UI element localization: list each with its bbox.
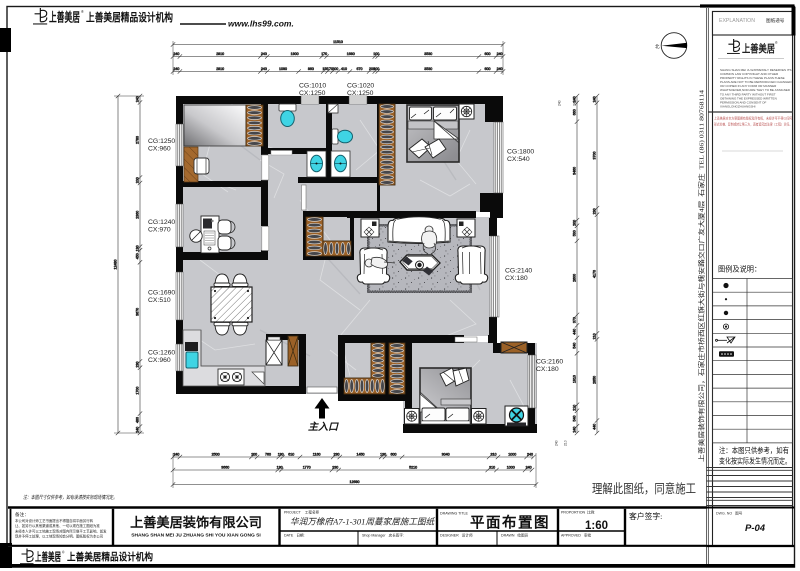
svg-text:2500: 2500 bbox=[212, 453, 220, 457]
svg-text:240: 240 bbox=[527, 453, 533, 457]
svg-text:CG:1240: CG:1240 bbox=[148, 219, 175, 226]
svg-text:CX:960: CX:960 bbox=[148, 357, 171, 364]
svg-text:1000: 1000 bbox=[507, 466, 515, 470]
svg-text:610: 610 bbox=[288, 453, 294, 457]
svg-text:1000: 1000 bbox=[508, 453, 516, 457]
svg-text:Shop Manager 店长签字:: Shop Manager 店长签字: bbox=[362, 533, 404, 538]
svg-text:北: 北 bbox=[655, 43, 660, 50]
svg-text:3460: 3460 bbox=[573, 167, 577, 175]
svg-text:100: 100 bbox=[373, 67, 379, 71]
svg-text:2810: 2810 bbox=[216, 52, 224, 56]
svg-text:3660: 3660 bbox=[221, 466, 229, 470]
svg-text:主入口: 主入口 bbox=[308, 421, 339, 433]
svg-text:540: 540 bbox=[573, 416, 577, 422]
svg-text:12690: 12690 bbox=[350, 480, 360, 484]
svg-text:2850: 2850 bbox=[593, 376, 597, 384]
svg-text:240: 240 bbox=[573, 100, 577, 106]
svg-text:形式抄袭、复制或转让第三方，违者追究其法律（工程）责任。: 形式抄袭、复制或转让第三方，违者追究其法律（工程）责任。 bbox=[714, 122, 792, 127]
svg-text:图例及说明：: 图例及说明： bbox=[718, 265, 761, 274]
svg-text:410: 410 bbox=[341, 67, 347, 71]
svg-text:DRAWING TITLE: DRAWING TITLE bbox=[440, 512, 469, 516]
svg-text:3040: 3040 bbox=[442, 453, 450, 457]
svg-text:310: 310 bbox=[491, 453, 497, 457]
svg-text:130: 130 bbox=[136, 245, 140, 251]
svg-text:平面布置图: 平面布置图 bbox=[470, 514, 550, 532]
svg-text:240: 240 bbox=[526, 466, 532, 470]
svg-text:670: 670 bbox=[357, 67, 363, 71]
svg-text:®: ® bbox=[775, 41, 778, 45]
svg-text:130: 130 bbox=[277, 466, 283, 470]
svg-text:240: 240 bbox=[136, 96, 140, 102]
svg-text:P-04: P-04 bbox=[745, 523, 766, 534]
svg-text:240: 240 bbox=[173, 453, 179, 457]
svg-text:240: 240 bbox=[497, 52, 503, 56]
svg-text:2780: 2780 bbox=[136, 136, 140, 144]
svg-text:240: 240 bbox=[497, 67, 503, 71]
svg-text:210: 210 bbox=[564, 440, 568, 446]
svg-text:240: 240 bbox=[558, 100, 562, 106]
svg-text:2360: 2360 bbox=[136, 211, 140, 219]
svg-text:440: 440 bbox=[573, 329, 577, 335]
svg-text:230: 230 bbox=[136, 362, 140, 368]
svg-text:DESIGNER 设计师: DESIGNER 设计师 bbox=[440, 533, 473, 538]
svg-text:240: 240 bbox=[593, 96, 597, 102]
svg-text:CG:2140: CG:2140 bbox=[505, 268, 532, 275]
svg-text:3530: 3530 bbox=[424, 52, 432, 56]
svg-text:130: 130 bbox=[380, 453, 386, 457]
svg-text:240: 240 bbox=[573, 427, 577, 433]
svg-text:200: 200 bbox=[573, 220, 577, 226]
svg-text:660: 660 bbox=[573, 109, 577, 115]
svg-text:XIANGLONGZHUANGSHI: XIANGLONGZHUANGSHI bbox=[720, 104, 756, 108]
svg-text:SHANG SHAN MEI JU ZHUANG SHI Y: SHANG SHAN MEI JU ZHUANG SHI YOU XIAN GO… bbox=[131, 533, 261, 539]
svg-text:860: 860 bbox=[308, 67, 314, 71]
svg-text:CG:1800: CG:1800 bbox=[507, 149, 534, 156]
svg-text:上善美居精品设计机构: 上善美居精品设计机构 bbox=[86, 10, 173, 24]
svg-text:5210: 5210 bbox=[409, 466, 417, 470]
svg-text:240: 240 bbox=[173, 67, 179, 71]
svg-text:530: 530 bbox=[573, 230, 577, 236]
svg-text:注：本图只供参考，如有: 注：本图只供参考，如有 bbox=[719, 445, 789, 455]
svg-text:440: 440 bbox=[593, 424, 597, 430]
svg-text:240: 240 bbox=[261, 52, 267, 56]
svg-text:CX:180: CX:180 bbox=[536, 366, 559, 373]
svg-text:130: 130 bbox=[278, 453, 284, 457]
svg-text:客户签字:: 客户签字: bbox=[629, 511, 662, 521]
svg-text:CG:2160: CG:2160 bbox=[536, 359, 563, 366]
svg-text:本公司对设计师工艺书面提出不得擅自将平面另行转: 本公司对设计师工艺书面提出不得擅自将平面另行转 bbox=[15, 518, 94, 523]
svg-text:1680: 1680 bbox=[347, 52, 355, 56]
svg-text:CX:970: CX:970 bbox=[148, 226, 171, 233]
svg-text:现并予停工处理，以工地现场知会分明。图纸版权为本公司: 现并予停工处理，以工地现场知会分明。图纸版权为本公司 bbox=[15, 534, 103, 539]
svg-text:APPROVED 审批: APPROVED 审批 bbox=[561, 533, 592, 538]
svg-text:210: 210 bbox=[573, 405, 577, 411]
svg-text:®: ® bbox=[62, 551, 65, 555]
svg-text:上善美居精品设计机构: 上善美居精品设计机构 bbox=[67, 551, 153, 564]
svg-text:1450: 1450 bbox=[357, 453, 365, 457]
svg-text:®: ® bbox=[81, 10, 84, 14]
svg-text:3670: 3670 bbox=[136, 308, 140, 316]
svg-text:PROJECT 工程名称: PROJECT 工程名称 bbox=[284, 510, 320, 515]
svg-text:DRAWN 绘图员: DRAWN 绘图员 bbox=[501, 533, 529, 538]
svg-text:理解此图纸，同意施工: 理解此图纸，同意施工 bbox=[592, 481, 696, 496]
svg-text:图纸递号: 图纸递号 bbox=[766, 17, 785, 24]
svg-text:240: 240 bbox=[136, 427, 140, 433]
svg-text:CX:510: CX:510 bbox=[148, 297, 171, 304]
svg-text:注：本图尺寸仅供参考，如有误请按实际现场情况定。: 注：本图尺寸仅供参考，如有误请按实际现场情况定。 bbox=[23, 494, 117, 501]
svg-text:CX:1250: CX:1250 bbox=[347, 90, 374, 97]
svg-text:变化按实际发生情况而定。: 变化按实际发生情况而定。 bbox=[719, 456, 791, 466]
svg-text:未经本人许可以工地施工现场对图内所示像平工艺影响、如发: 未经本人许可以工地施工现场对图内所示像平工艺影响、如发 bbox=[15, 528, 107, 533]
svg-text:600: 600 bbox=[391, 453, 397, 457]
svg-text:210: 210 bbox=[593, 333, 597, 339]
svg-text:1770: 1770 bbox=[303, 466, 311, 470]
svg-text:CX:960: CX:960 bbox=[148, 145, 171, 152]
svg-text:1700: 1700 bbox=[136, 387, 140, 395]
svg-text:170: 170 bbox=[321, 52, 327, 56]
svg-text:540: 540 bbox=[573, 343, 577, 349]
svg-text:450: 450 bbox=[136, 253, 140, 259]
svg-text:230: 230 bbox=[334, 453, 340, 457]
svg-text:CG:1690: CG:1690 bbox=[148, 290, 175, 297]
svg-text:1090: 1090 bbox=[279, 67, 287, 71]
svg-text:上善美居: 上善美居 bbox=[35, 550, 61, 564]
svg-text:370: 370 bbox=[573, 317, 577, 323]
svg-text:600: 600 bbox=[485, 52, 491, 56]
svg-text:760: 760 bbox=[265, 453, 271, 457]
svg-text:240: 240 bbox=[555, 440, 559, 446]
svg-text:200: 200 bbox=[136, 177, 140, 183]
svg-text:600: 600 bbox=[485, 67, 491, 71]
svg-text:230: 230 bbox=[332, 466, 338, 470]
svg-text:上善美居装饰有限公司，石家庄市桥西区红旗大街与槐安路交口广友: 上善美居装饰有限公司，石家庄市桥西区红旗大街与槐安路交口广友大厦4层 石家庄 T… bbox=[697, 89, 706, 462]
svg-text:4170: 4170 bbox=[593, 270, 597, 278]
svg-text:上善美居装饰有限公司: 上善美居装饰有限公司 bbox=[130, 514, 262, 530]
svg-text:310: 310 bbox=[489, 466, 495, 470]
svg-text:240: 240 bbox=[173, 52, 179, 56]
svg-text:CX:1250: CX:1250 bbox=[299, 90, 326, 97]
svg-text:备注：: 备注： bbox=[15, 511, 29, 518]
svg-text:CX:180: CX:180 bbox=[505, 275, 528, 282]
svg-text:CX:540: CX:540 bbox=[507, 156, 530, 163]
svg-text:CG:1020: CG:1020 bbox=[347, 83, 374, 90]
svg-text:DWG. NO 图号: DWG. NO 图号 bbox=[716, 511, 743, 516]
svg-text:240: 240 bbox=[261, 67, 267, 71]
svg-text:让、如另行以其他渠道或其他、一切以现在施工图纸为准: 让、如另行以其他渠道或其他、一切以现在施工图纸为准 bbox=[15, 523, 100, 528]
svg-text:230: 230 bbox=[593, 208, 597, 214]
svg-text:华润万橡府A7-1-301周蔓家居施工图纸: 华润万橡府A7-1-301周蔓家居施工图纸 bbox=[290, 517, 436, 527]
svg-text:CG:1250: CG:1250 bbox=[148, 138, 175, 145]
svg-text:200: 200 bbox=[332, 67, 338, 71]
svg-text:1810: 1810 bbox=[573, 375, 577, 383]
svg-text:上善美居: 上善美居 bbox=[49, 10, 80, 25]
svg-text:3700: 3700 bbox=[593, 152, 597, 160]
svg-text:3530: 3530 bbox=[424, 67, 432, 71]
svg-text:11510: 11510 bbox=[333, 40, 343, 44]
svg-text:PROPORTION 比例:: PROPORTION 比例: bbox=[561, 510, 595, 515]
svg-text:上善美居对本方案图拥有版权及所有权，未经许可不得以任何: 上善美居对本方案图拥有版权及所有权，未经许可不得以任何 bbox=[714, 116, 793, 121]
svg-text:www.lhs99.com.: www.lhs99.com. bbox=[228, 19, 294, 29]
svg-text:200: 200 bbox=[251, 453, 257, 457]
svg-text:12480: 12480 bbox=[113, 260, 117, 270]
svg-text:1900: 1900 bbox=[291, 52, 299, 56]
svg-text:CG:1260: CG:1260 bbox=[148, 350, 175, 357]
svg-text:CG:1010: CG:1010 bbox=[299, 83, 326, 90]
svg-text:2600: 2600 bbox=[573, 274, 577, 282]
svg-text:2810: 2810 bbox=[216, 67, 224, 71]
svg-text:上善美居: 上善美居 bbox=[742, 42, 775, 55]
svg-text:EXPLANATION: EXPLANATION bbox=[719, 18, 755, 24]
svg-text:100: 100 bbox=[373, 52, 379, 56]
svg-text:DATE 日期:: DATE 日期: bbox=[284, 533, 305, 538]
svg-text:480: 480 bbox=[136, 417, 140, 423]
svg-text:1160: 1160 bbox=[313, 453, 321, 457]
